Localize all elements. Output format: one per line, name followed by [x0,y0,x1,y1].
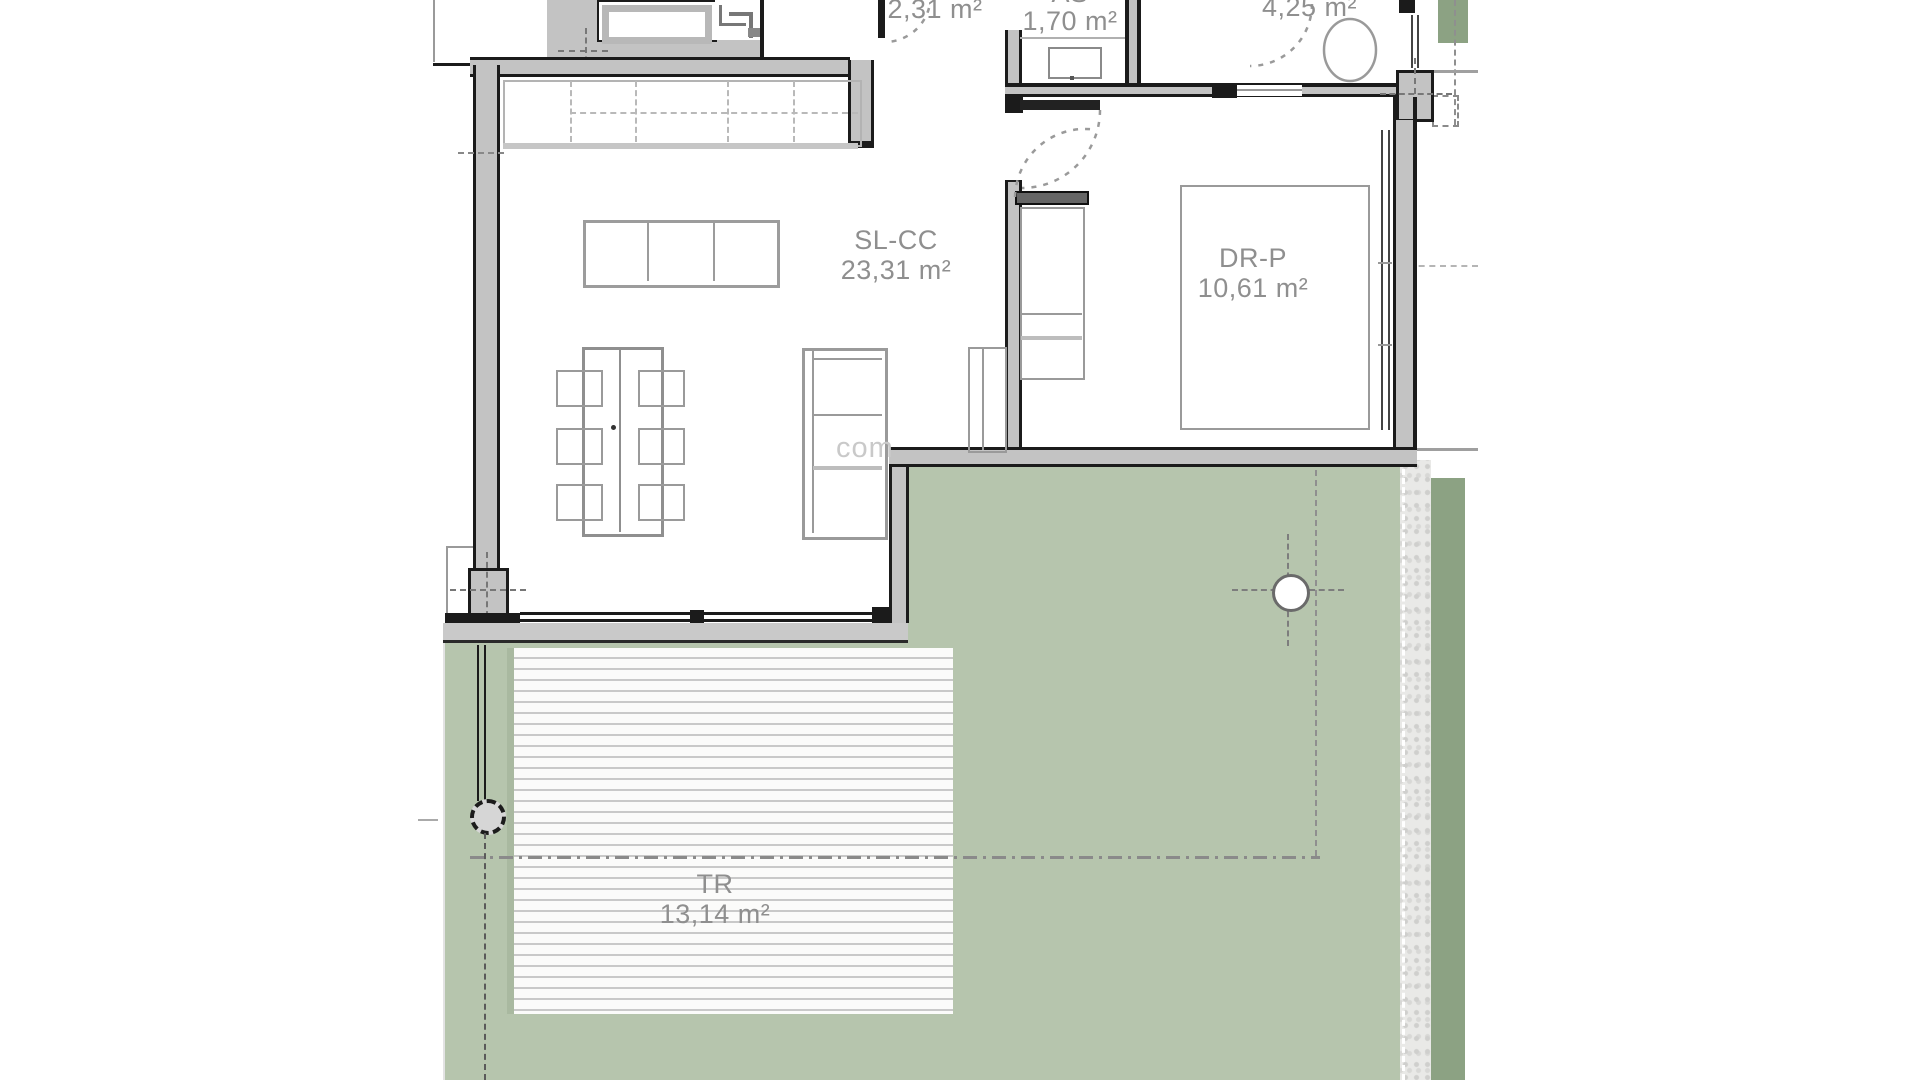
bedroom-top-wall-fill [1005,87,1417,94]
bath2-doorway-line-2 [1417,15,1419,68]
sink [1048,47,1102,79]
bath1-door-arc [1022,110,1100,188]
glass-door-1-inner [520,619,692,622]
living-left-wall-inner [497,65,500,570]
wardrobe [1020,207,1085,380]
dash-row-right [1408,265,1478,267]
bedroom-right-wall-fill [1396,120,1413,447]
bath2-doorway-line-1 [1411,15,1413,68]
boundary-dashed-rect [1432,95,1459,127]
core-axis-cross-h [558,50,608,52]
bedroom-label: DR-P 10,61 m² [1153,243,1353,303]
bedroom-window-line-1 [1381,130,1383,430]
chair [638,370,685,407]
corner-column-cross-h [450,589,526,591]
wardrobe-divider-2 [1021,336,1082,340]
core-room-bottom-wall [433,63,473,66]
bedroom-door-arc [1015,129,1097,197]
hall-wall-fill [1008,182,1019,447]
bedroom-code: DR-P [1153,243,1353,273]
terrace-lawn-upper-right [908,467,1402,643]
bedroom-top-wall-bottom-edge [1005,94,1417,97]
sofa-seat-divider-2 [813,466,882,470]
left-wall-axis-dash [458,152,504,154]
living-room-code: SL-CC [796,225,996,255]
bedroom-right-wall-outer [1413,97,1417,467]
living-room-label: SL-CC 23,31 m² [796,225,996,285]
bedroom-window-line-2 [1388,130,1390,430]
setback-dashed-vertical [1315,470,1317,856]
gravel-dashed-line [1402,460,1405,1080]
sofa-arm-line [812,349,814,533]
terrace-code: TR [615,869,815,899]
bedroom-window-mullion-2 [1378,344,1392,346]
glass-door-mullion [690,610,704,623]
sofa-back-line [813,358,882,360]
chair [638,484,685,521]
bath1-divider-line [1020,37,1130,39]
hedge-patch-top-right [1438,0,1468,43]
bath1-door-leaf [1020,100,1100,110]
terrace-decking [507,648,953,1014]
table-center-dot [611,425,616,430]
dim-tick-left [418,819,438,821]
sofa-seat-divider-1 [813,414,882,416]
bedroom-area: 10,61 m² [1153,273,1353,303]
bath1-area-label: 1,70 m² [1010,6,1130,36]
balustrade-column-marker [470,799,506,835]
terrace-sill [443,623,908,641]
watermark-text: com [836,432,894,465]
kitchen-counter-front-band [503,143,858,149]
kitchen-island-divider-1 [647,221,649,281]
corner-column [468,568,509,616]
tv-unit [968,347,1007,453]
elevator [597,0,717,42]
bath1-right-wall-inner [1137,0,1141,87]
kitchen-island [583,220,780,288]
dining-table-centerline [619,348,621,532]
living-top-wall-top-edge [470,57,850,60]
balustrade-line-inner [484,645,486,801]
bath1-left-wall-fill [1008,30,1019,85]
kitchen-counter-midline [570,112,858,114]
bedroom-top-wall-pier [1212,83,1237,98]
living-room-area: 23,31 m² [796,255,996,285]
setback-dashdot-line [470,856,1320,859]
elevator-cab [602,5,712,44]
kitchen-island-divider-2 [713,221,715,281]
chair [556,428,603,465]
wardrobe-divider-1 [1021,313,1082,315]
bed [1180,185,1370,430]
facade-column-cross-h [1380,93,1452,95]
bath2-area-label: 4,25 m² [1247,0,1372,22]
terrace-column-marker [1272,574,1310,612]
sink-drain-dot [1070,76,1074,80]
chair [638,428,685,465]
glass-door-2-inner [704,619,874,622]
hall-area-label: 2,31 m² [870,0,1000,24]
chair [556,370,603,407]
front-wall-left-bar [445,613,520,623]
bedroom-top-wall-window-line [1227,89,1302,91]
bedroom-door-leaf [1015,191,1089,205]
glass-door-1-outer [520,612,692,615]
hedge-strip-right [1431,478,1465,1080]
balustrade-dashed-continuation [484,833,486,1080]
plot-edge-line [1417,448,1478,451]
core-right-wall [760,0,764,60]
toilet-oval [1324,19,1376,81]
bedroom-window-mullion-1 [1378,262,1392,264]
tv-unit-inner-line [982,348,984,450]
living-left-wall-fill [476,65,497,570]
living-top-wall-bottom-edge [470,74,850,77]
living-right-return-wall-fill [892,460,906,623]
living-right-return-wall-right [906,460,909,623]
bedroom-bottom-wall-bottom-edge [889,464,1417,467]
floor-plan: 2,31 m² AS 1,70 m² 4,25 m² SL-CC 23,31 m… [0,0,1920,1080]
hall-stub-wall-right-edge [871,60,874,147]
chair [556,484,603,521]
terrace-sill-edge [443,640,908,643]
bath2-right-wall-stub [1399,0,1415,13]
terrace-label: TR 13,14 m² [615,869,815,929]
bath1-right-wall-fill [1129,0,1137,87]
glass-door-2-outer [704,612,874,615]
balustrade-line-outer [477,645,479,801]
core-room [433,0,547,62]
terrace-area: 13,14 m² [615,899,815,929]
